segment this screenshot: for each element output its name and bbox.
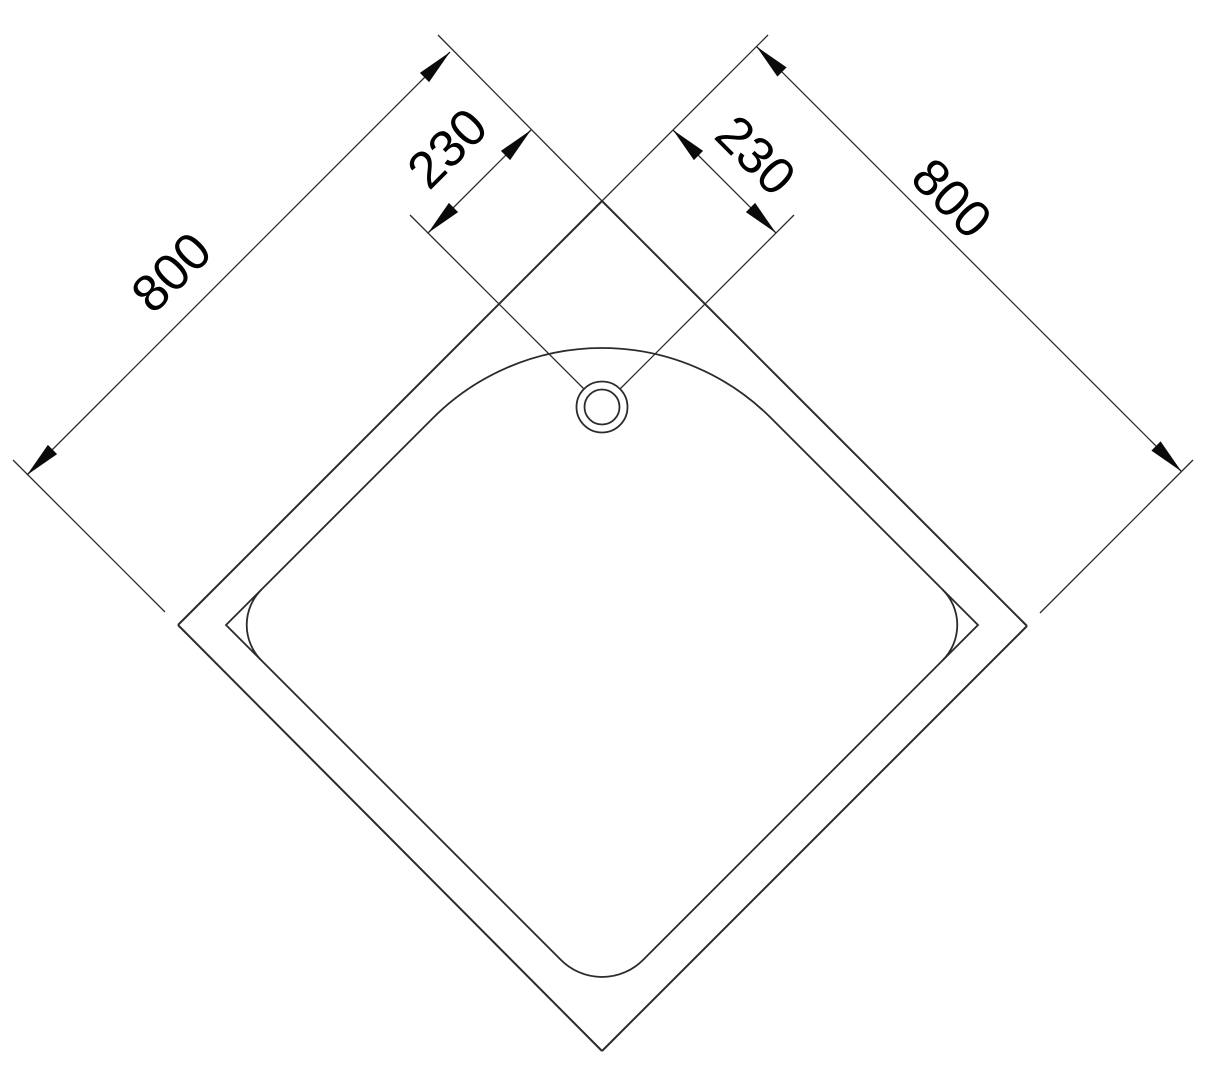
dim-label-800-right: 800 [900, 148, 1002, 250]
basin-shape [226, 348, 978, 977]
dim-label-800-left: 800 [121, 222, 223, 324]
tray-edge-lower-right [602, 626, 1027, 1051]
extension-line-left-corner [13, 460, 165, 612]
basin-corner-arc-left [247, 590, 262, 661]
dimension-line-800-right [757, 47, 1182, 472]
dim-label-230-left: 230 [397, 98, 499, 200]
tray-edge-upper-right [602, 201, 1027, 626]
dimension-line-800-left [27, 52, 450, 475]
basin-outline [226, 348, 978, 977]
tray-edge-lower-left [178, 625, 602, 1051]
tray-outer-outline [178, 201, 1027, 1051]
tray-edge-upper-left [178, 201, 602, 625]
dimension-800-right: 800 [757, 47, 1194, 614]
extension-line-right-corner [1040, 460, 1193, 613]
technical-drawing-canvas: 800 230 230 800 [0, 0, 1228, 1089]
drain [577, 382, 628, 433]
dim-label-230-right: 230 [704, 105, 806, 207]
basin-corner-arc-right [943, 590, 958, 661]
extension-line-drain-right [620, 215, 794, 389]
technical-drawing-page: 800 230 230 800 [0, 0, 1228, 1089]
drain-circle-inner [585, 390, 620, 425]
dimension-230-left: 230 [397, 98, 584, 389]
extension-line-drain-left [410, 215, 584, 389]
dimension-800-left: 800 [13, 52, 450, 612]
